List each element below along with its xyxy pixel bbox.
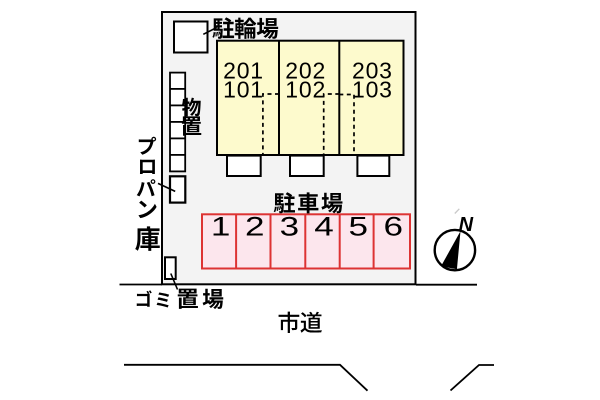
svg-text:102: 102 xyxy=(285,76,326,102)
svg-text:2: 2 xyxy=(245,211,265,241)
svg-text:3: 3 xyxy=(280,211,300,241)
svg-text:101: 101 xyxy=(223,76,264,102)
svg-text:4: 4 xyxy=(314,211,334,241)
svg-text:6: 6 xyxy=(384,211,404,241)
svg-text:N: N xyxy=(459,214,474,236)
svg-text:1: 1 xyxy=(211,211,231,241)
svg-text:103: 103 xyxy=(352,76,393,102)
svg-text:5: 5 xyxy=(348,211,368,241)
